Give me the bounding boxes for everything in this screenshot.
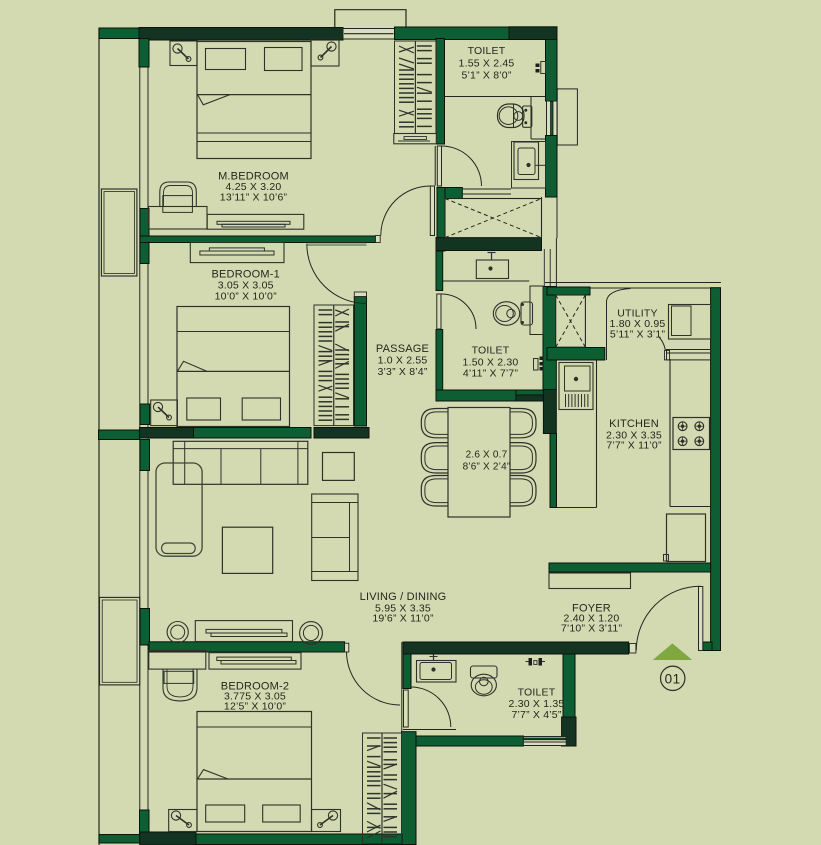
svg-text:3’3” X 8’4”: 3’3” X 8’4” <box>377 366 427 378</box>
svg-text:2.6 X 0.7: 2.6 X 0.7 <box>466 450 508 461</box>
svg-text:LIVING / DINING: LIVING / DINING <box>360 591 447 603</box>
svg-text:8’6” X 2’4”: 8’6” X 2’4” <box>463 462 511 473</box>
svg-text:7’7” X 11’0”: 7’7” X 11’0” <box>606 440 662 452</box>
svg-text:TOILET: TOILET <box>468 45 506 57</box>
svg-text:TOILET: TOILET <box>472 345 510 357</box>
svg-text:7’10” X 3’11”: 7’10” X 3’11” <box>561 623 623 635</box>
svg-text:KITCHEN: KITCHEN <box>609 418 659 430</box>
svg-text:4’11” X 7’7”: 4’11” X 7’7” <box>463 368 519 380</box>
svg-text:5’1” X 8’0”: 5’1” X 8’0” <box>461 70 511 82</box>
svg-text:5’11” X 3’1”: 5’11” X 3’1” <box>610 329 666 341</box>
svg-text:7’7” X 4’5”: 7’7” X 4’5” <box>511 709 561 721</box>
svg-text:19’6” X 11’0”: 19’6” X 11’0” <box>372 613 434 625</box>
svg-text:13’11” X 10’6”: 13’11” X 10’6” <box>220 192 288 204</box>
svg-text:1.0 X 2.55: 1.0 X 2.55 <box>378 355 428 367</box>
svg-text:10’0” X 10’0”: 10’0” X 10’0” <box>215 291 277 303</box>
svg-text:TOILET: TOILET <box>518 687 556 699</box>
svg-text:PASSAGE: PASSAGE <box>376 343 429 355</box>
svg-text:1.55 X 2.45: 1.55 X 2.45 <box>459 58 515 70</box>
svg-text:12’5” X 10’0”: 12’5” X 10’0” <box>224 701 286 713</box>
svg-text:01: 01 <box>665 671 681 686</box>
